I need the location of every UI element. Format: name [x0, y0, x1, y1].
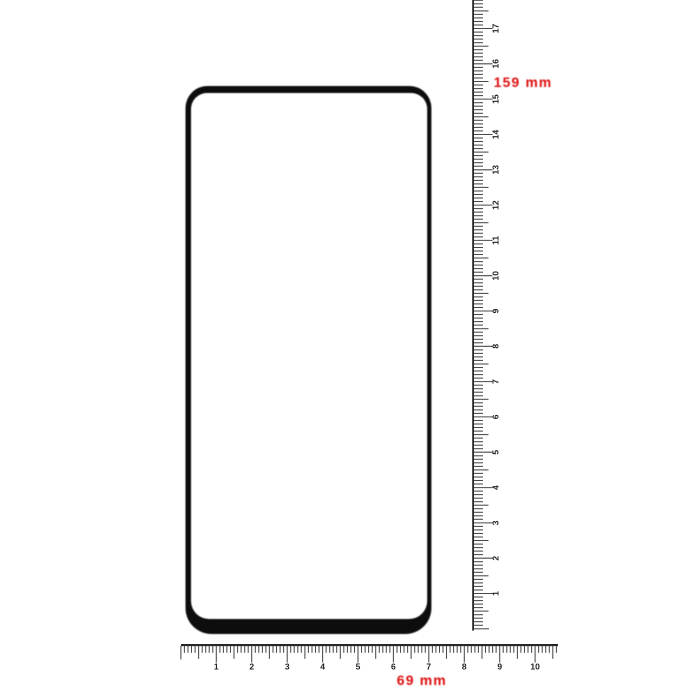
svg-text:14: 14 [490, 130, 500, 140]
svg-text:8: 8 [490, 344, 500, 349]
svg-text:3: 3 [285, 662, 290, 672]
svg-text:4: 4 [320, 662, 325, 672]
svg-text:2: 2 [249, 662, 254, 672]
svg-text:8: 8 [462, 662, 467, 672]
svg-text:2: 2 [490, 556, 500, 561]
svg-text:10: 10 [490, 271, 500, 281]
svg-text:5: 5 [490, 450, 500, 455]
svg-text:5: 5 [356, 662, 361, 672]
svg-text:3: 3 [490, 520, 500, 525]
svg-text:4: 4 [490, 485, 500, 490]
svg-text:1: 1 [214, 662, 219, 672]
svg-text:10: 10 [530, 662, 540, 672]
svg-text:12: 12 [490, 200, 500, 210]
svg-text:15: 15 [490, 94, 500, 104]
svg-text:16: 16 [490, 59, 500, 69]
svg-text:1: 1 [490, 591, 500, 596]
svg-text:9: 9 [490, 308, 500, 313]
svg-text:13: 13 [490, 165, 500, 175]
svg-text:6: 6 [490, 414, 500, 419]
svg-text:6: 6 [391, 662, 396, 672]
svg-text:7: 7 [426, 662, 431, 672]
svg-text:69 mm: 69 mm [397, 672, 447, 688]
svg-text:7: 7 [490, 379, 500, 384]
svg-text:11: 11 [490, 236, 500, 245]
svg-text:159 mm: 159 mm [494, 75, 553, 90]
svg-text:17: 17 [490, 24, 500, 34]
svg-text:9: 9 [497, 662, 502, 672]
